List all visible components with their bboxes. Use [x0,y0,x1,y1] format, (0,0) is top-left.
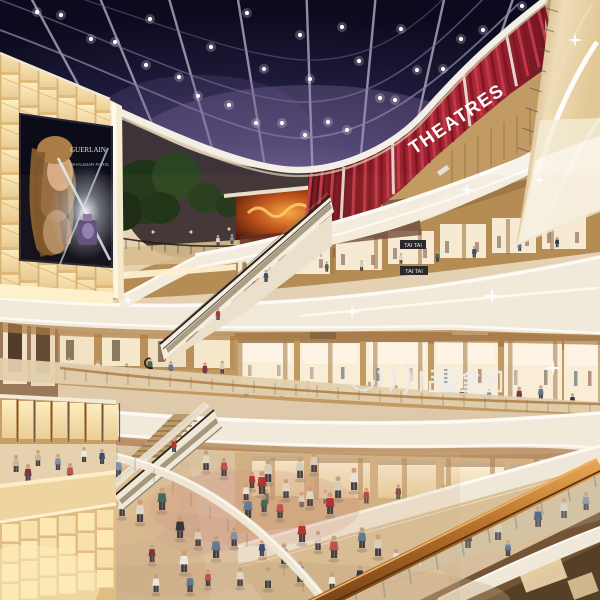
svg-text:SHALIMAR PARIS: SHALIMAR PARIS [71,162,108,167]
svg-text:GUERLAIN: GUERLAIN [70,146,106,154]
